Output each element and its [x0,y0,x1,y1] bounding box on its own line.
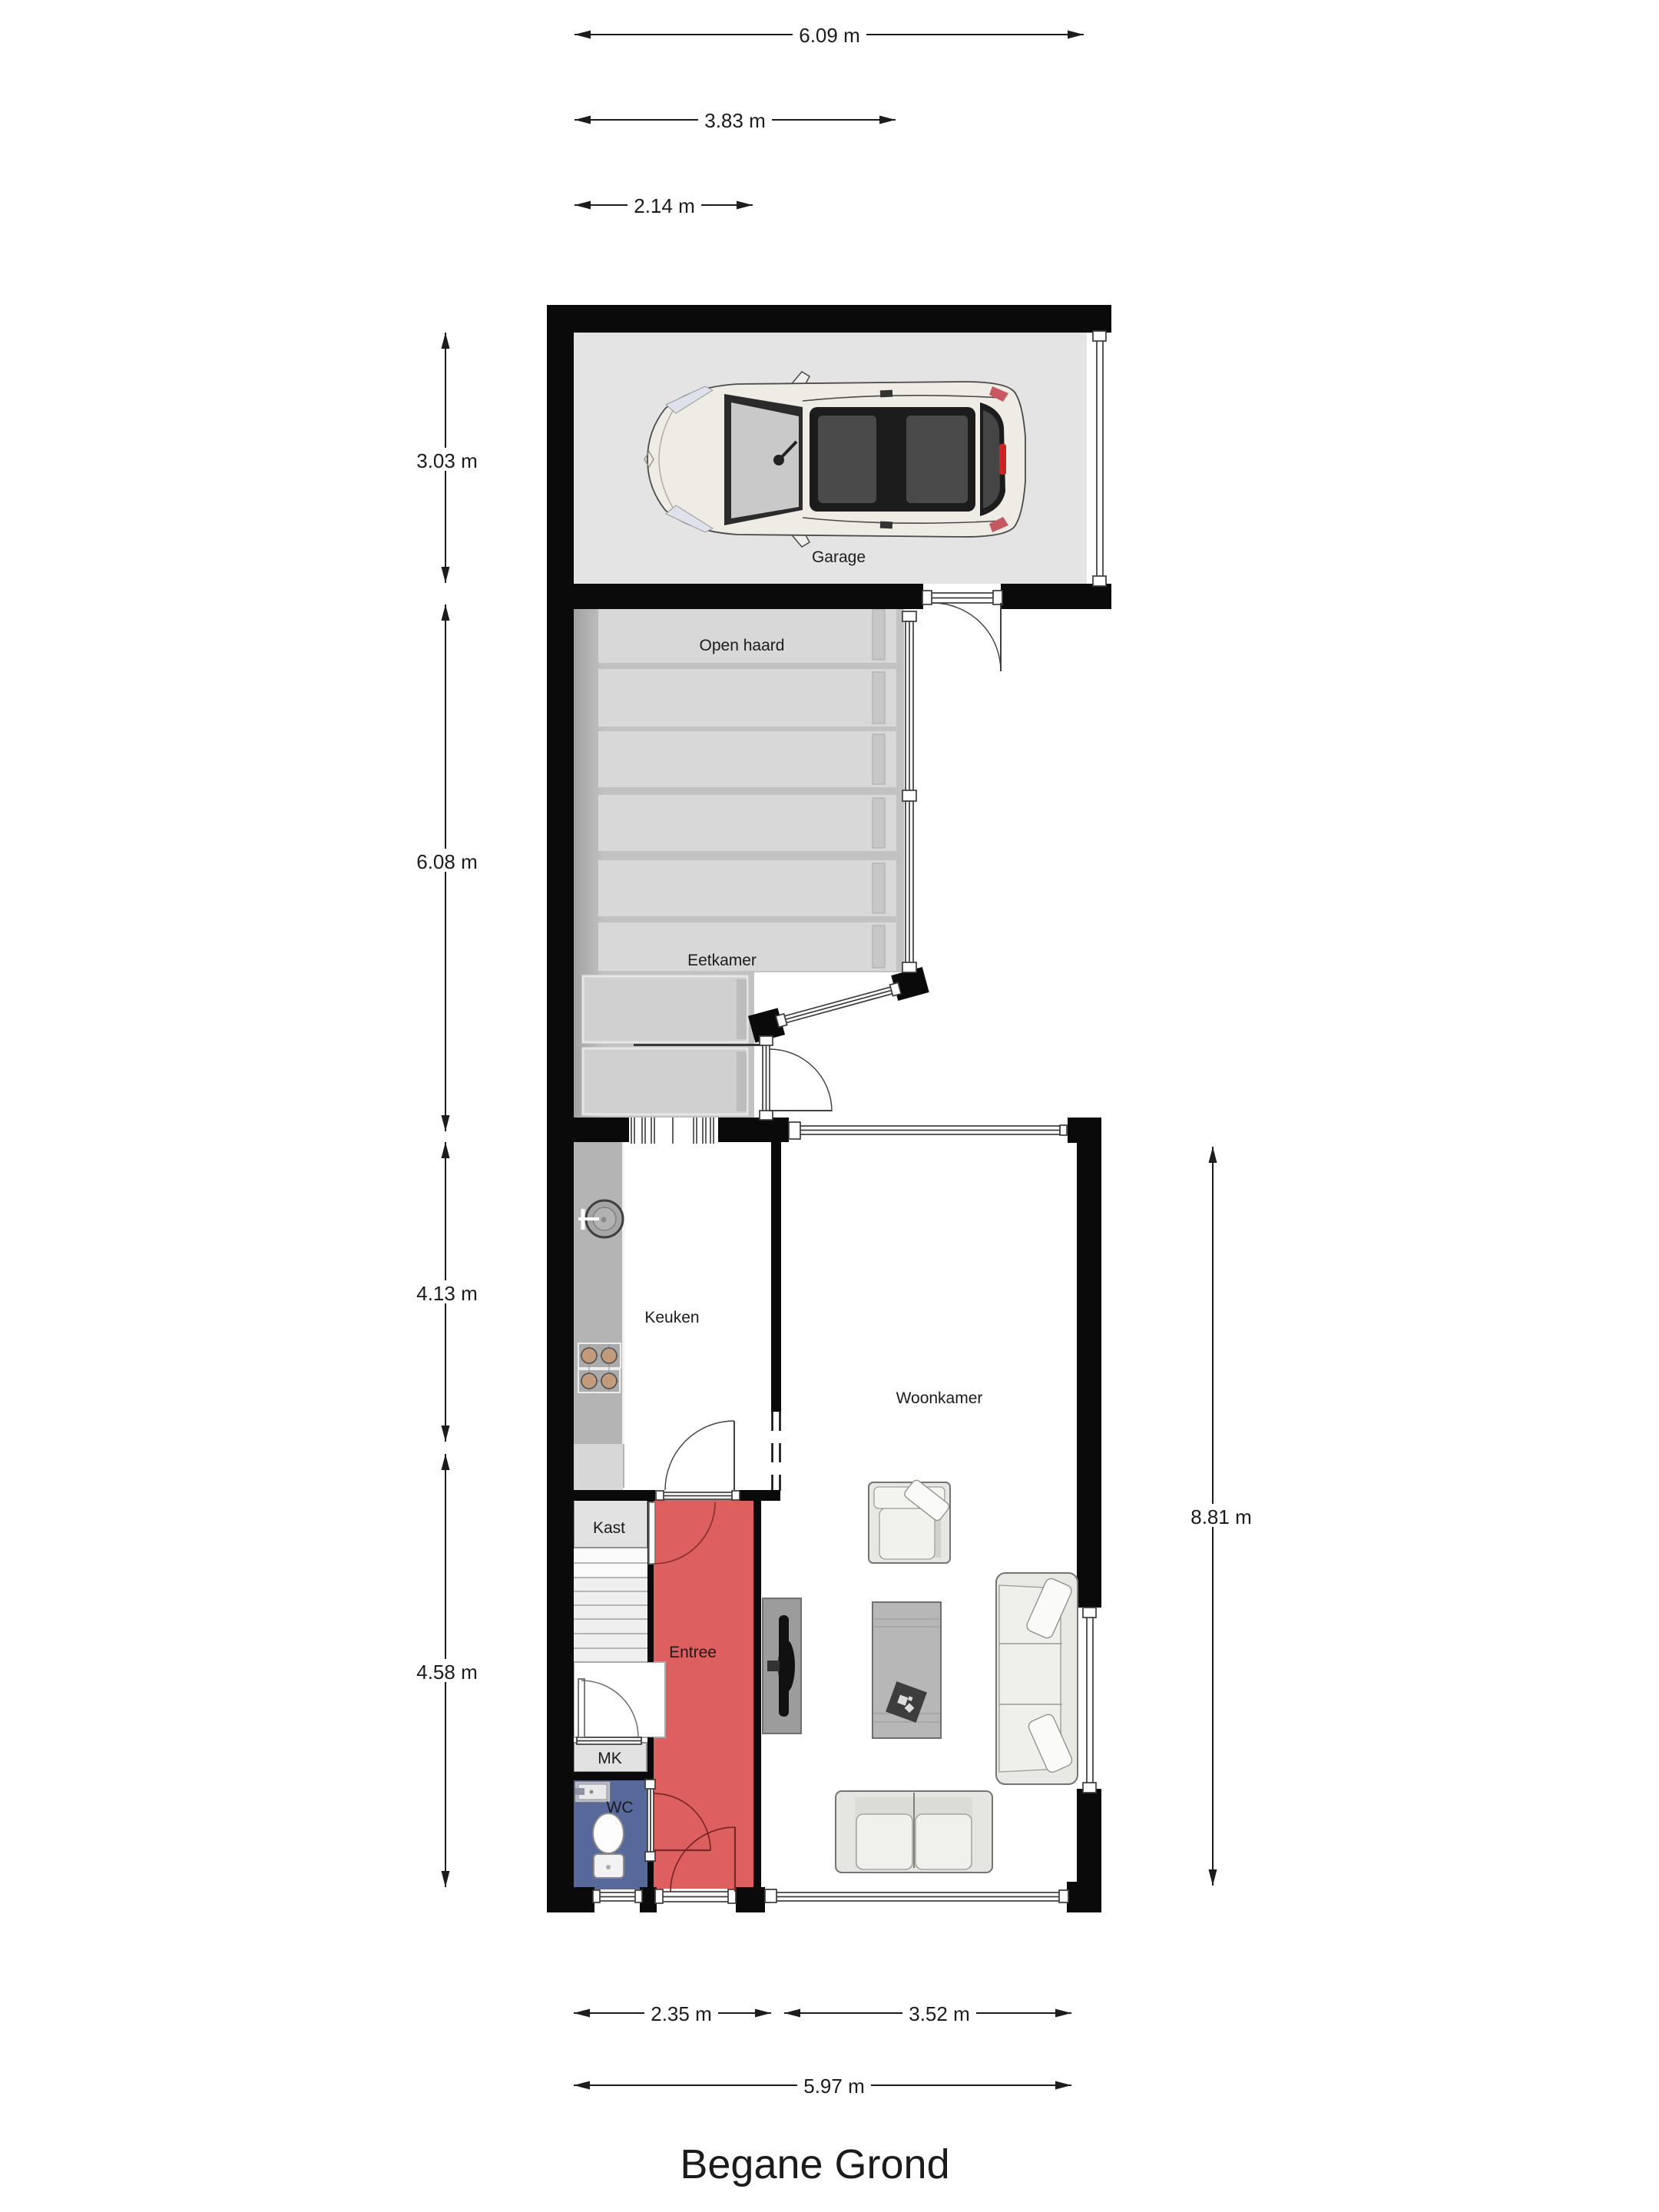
svg-text:2.14 m: 2.14 m [634,194,695,217]
svg-text:2.35 m: 2.35 m [651,2002,712,2025]
svg-text:3.52 m: 3.52 m [909,2002,970,2025]
svg-text:4.13 m: 4.13 m [416,1282,478,1305]
svg-text:WC: WC [607,1799,634,1816]
svg-text:4.58 m: 4.58 m [416,1661,478,1684]
svg-text:5.97 m: 5.97 m [803,2075,865,2098]
svg-text:3.83 m: 3.83 m [704,109,766,132]
svg-text:6.08 m: 6.08 m [416,850,478,873]
svg-text:Begane Grond: Begane Grond [680,2141,949,2187]
svg-text:Woonkamer: Woonkamer [896,1389,983,1407]
svg-text:3.03 m: 3.03 m [416,449,478,472]
svg-text:Keuken: Keuken [644,1309,699,1326]
svg-text:Garage: Garage [812,548,866,566]
svg-text:8.81 m: 8.81 m [1190,1505,1252,1528]
svg-text:6.09 m: 6.09 m [799,24,860,47]
svg-text:MK: MK [598,1750,622,1767]
svg-text:Eetkamer: Eetkamer [687,952,757,969]
svg-text:Kast: Kast [593,1519,625,1537]
svg-text:Open haard: Open haard [700,637,785,654]
svg-text:Entree: Entree [669,1644,717,1661]
